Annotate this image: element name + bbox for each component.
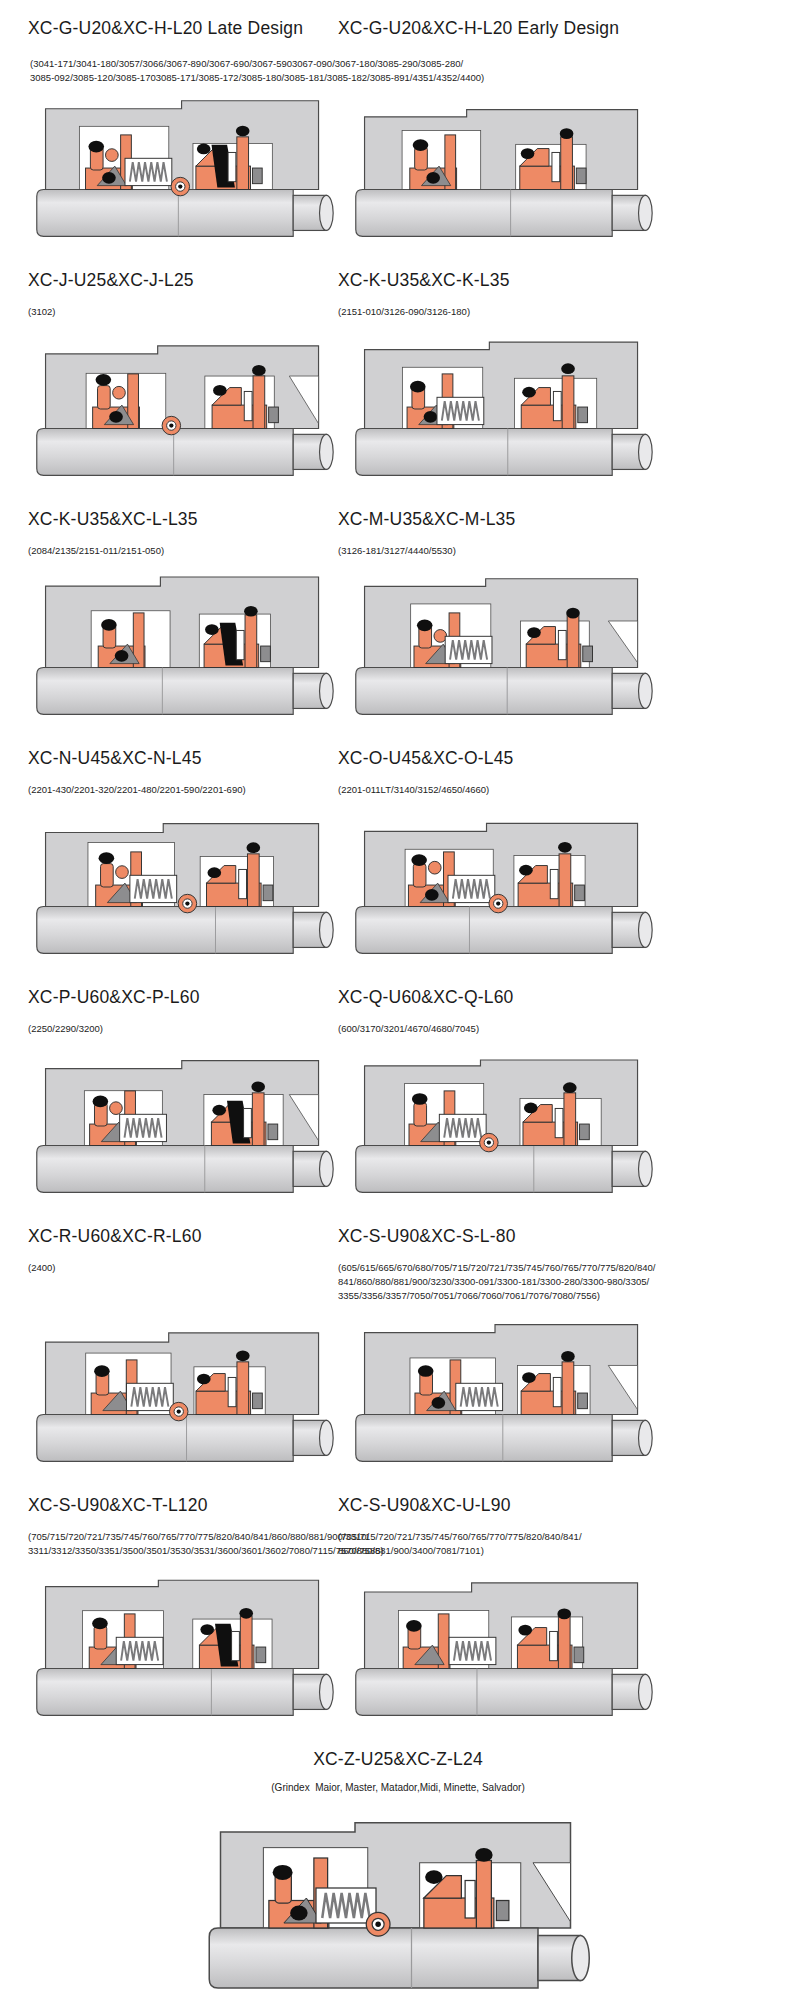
entry-title: XC-G-U20&XC-H-L20 Late Design: [28, 18, 338, 39]
entry-title: XC-S-U90&XC-T-L120: [28, 1495, 338, 1516]
catalog-row: XC-J-U25&XC-J-L25 (3102) XC-K-U35&XC-K-L…: [0, 264, 796, 487]
entry-model-list: (2151-010/3126-090/3126-180): [338, 305, 768, 321]
seal-cross-section-diagram: [28, 570, 340, 726]
seal-diagram-figure: [338, 1317, 768, 1473]
seal-diagram-figure: [28, 1048, 338, 1204]
entry-model-list: (705/715/720/721/735/745/760/765/770/775…: [338, 1530, 768, 1561]
entry-model-list: (705/715/720/721/735/745/760/765/770/775…: [28, 1530, 338, 1561]
entry-model-list: (600/3170/3201/4670/4680/7045): [338, 1022, 768, 1038]
entry-title: XC-O-U45&XC-O-L45: [338, 748, 768, 769]
entry-title: XC-R-U60&XC-R-L60: [28, 1226, 338, 1247]
entry-title: XC-G-U20&XC-H-L20 Early Design: [338, 18, 768, 39]
seal-diagram-figure: [28, 1571, 338, 1727]
seal-diagram-figure: [338, 92, 768, 248]
entry-title: XC-Q-U60&XC-Q-L60: [338, 987, 768, 1008]
seal-cross-section-diagram: [338, 331, 668, 487]
entry-model-list: (2084/2135/2151-011/2151-050): [28, 544, 338, 560]
seal-cross-section-diagram: [28, 1317, 340, 1473]
entry-title: XC-M-U35&XC-M-L35: [338, 509, 768, 530]
seal-diagram-figure: [338, 809, 768, 965]
seal-cross-section-diagram: [28, 92, 340, 248]
seal-cross-section-diagram: [338, 1048, 668, 1204]
seal-cross-section-diagram: [198, 1803, 598, 2003]
seal-cross-section-diagram: [338, 1571, 668, 1727]
catalog-row: XC-R-U60&XC-R-L60 (2400) XC-S-U90&XC-S-L…: [0, 1220, 796, 1473]
seal-diagram-figure: [28, 1317, 338, 1473]
seal-diagram-figure: [28, 570, 338, 726]
entry-model-list: (2400): [28, 1261, 338, 1307]
entry-title: XC-K-U35&XC-L-L35: [28, 509, 338, 530]
seal-diagram-figure: [338, 1571, 768, 1727]
entry-model-list: (2250/2290/3200): [28, 1022, 338, 1038]
entry-model-list: (605/615/665/670/680/705/715/720/721/735…: [338, 1261, 768, 1307]
seal-diagram-figure: [338, 1048, 768, 1204]
footer-entry: XC-Z-U25&XC-Z-L24 (Grindex Maior, Master…: [0, 1749, 796, 2003]
seal-diagram-figure: [338, 331, 768, 487]
entry-title: XC-Z-U25&XC-Z-L24: [0, 1749, 796, 1770]
seal-cross-section-diagram: [338, 570, 668, 726]
catalog-row: [0, 92, 796, 248]
catalog-row: XC-G-U20&XC-H-L20 Late Design XC-G-U20&X…: [0, 12, 796, 53]
entry-title: XC-J-U25&XC-J-L25: [28, 270, 338, 291]
entry-model-list: (3102): [28, 305, 338, 321]
catalog-row: XC-K-U35&XC-L-L35 (2084/2135/2151-011/21…: [0, 503, 796, 726]
entry-model-list: (2201-011LT/3140/3152/4650/4660): [338, 783, 768, 799]
seal-cross-section-diagram: [28, 1571, 340, 1727]
entry-title: XC-S-U90&XC-U-L90: [338, 1495, 768, 1516]
entry-model-list: (3126-181/3127/4440/5530): [338, 544, 768, 560]
seal-cross-section-diagram: [28, 809, 340, 965]
seal-diagram-figure: [338, 570, 768, 726]
catalog-row: XC-S-U90&XC-T-L120 (705/715/720/721/735/…: [0, 1489, 796, 1727]
entry-model-list: (3041-171/3041-180/3057/3066/3067-890/30…: [30, 57, 796, 86]
seal-diagram-figure: [28, 92, 338, 248]
entry-model-list: (Grindex Maior, Master, Matador,Midi, Mi…: [0, 1780, 796, 1795]
seal-diagram-figure: [0, 1803, 796, 2003]
catalog-row: XC-P-U60&XC-P-L60 (2250/2290/3200) XC-Q-…: [0, 981, 796, 1204]
seal-cross-section-diagram: [338, 92, 668, 248]
seal-catalog-page: XC-G-U20&XC-H-L20 Late Design XC-G-U20&X…: [0, 0, 796, 2003]
catalog-row: XC-N-U45&XC-N-L45 (2201-430/2201-320/220…: [0, 742, 796, 965]
seal-diagram-figure: [28, 331, 338, 487]
entry-title: XC-S-U90&XC-S-L-80: [338, 1226, 768, 1247]
seal-cross-section-diagram: [338, 809, 668, 965]
seal-diagram-figure: [28, 809, 338, 965]
entry-model-list: (2201-430/2201-320/2201-480/2201-590/220…: [28, 783, 338, 799]
entry-title: XC-N-U45&XC-N-L45: [28, 748, 338, 769]
seal-cross-section-diagram: [338, 1317, 668, 1473]
seal-cross-section-diagram: [28, 331, 340, 487]
seal-cross-section-diagram: [28, 1048, 340, 1204]
entry-title: XC-K-U35&XC-K-L35: [338, 270, 768, 291]
entry-title: XC-P-U60&XC-P-L60: [28, 987, 338, 1008]
